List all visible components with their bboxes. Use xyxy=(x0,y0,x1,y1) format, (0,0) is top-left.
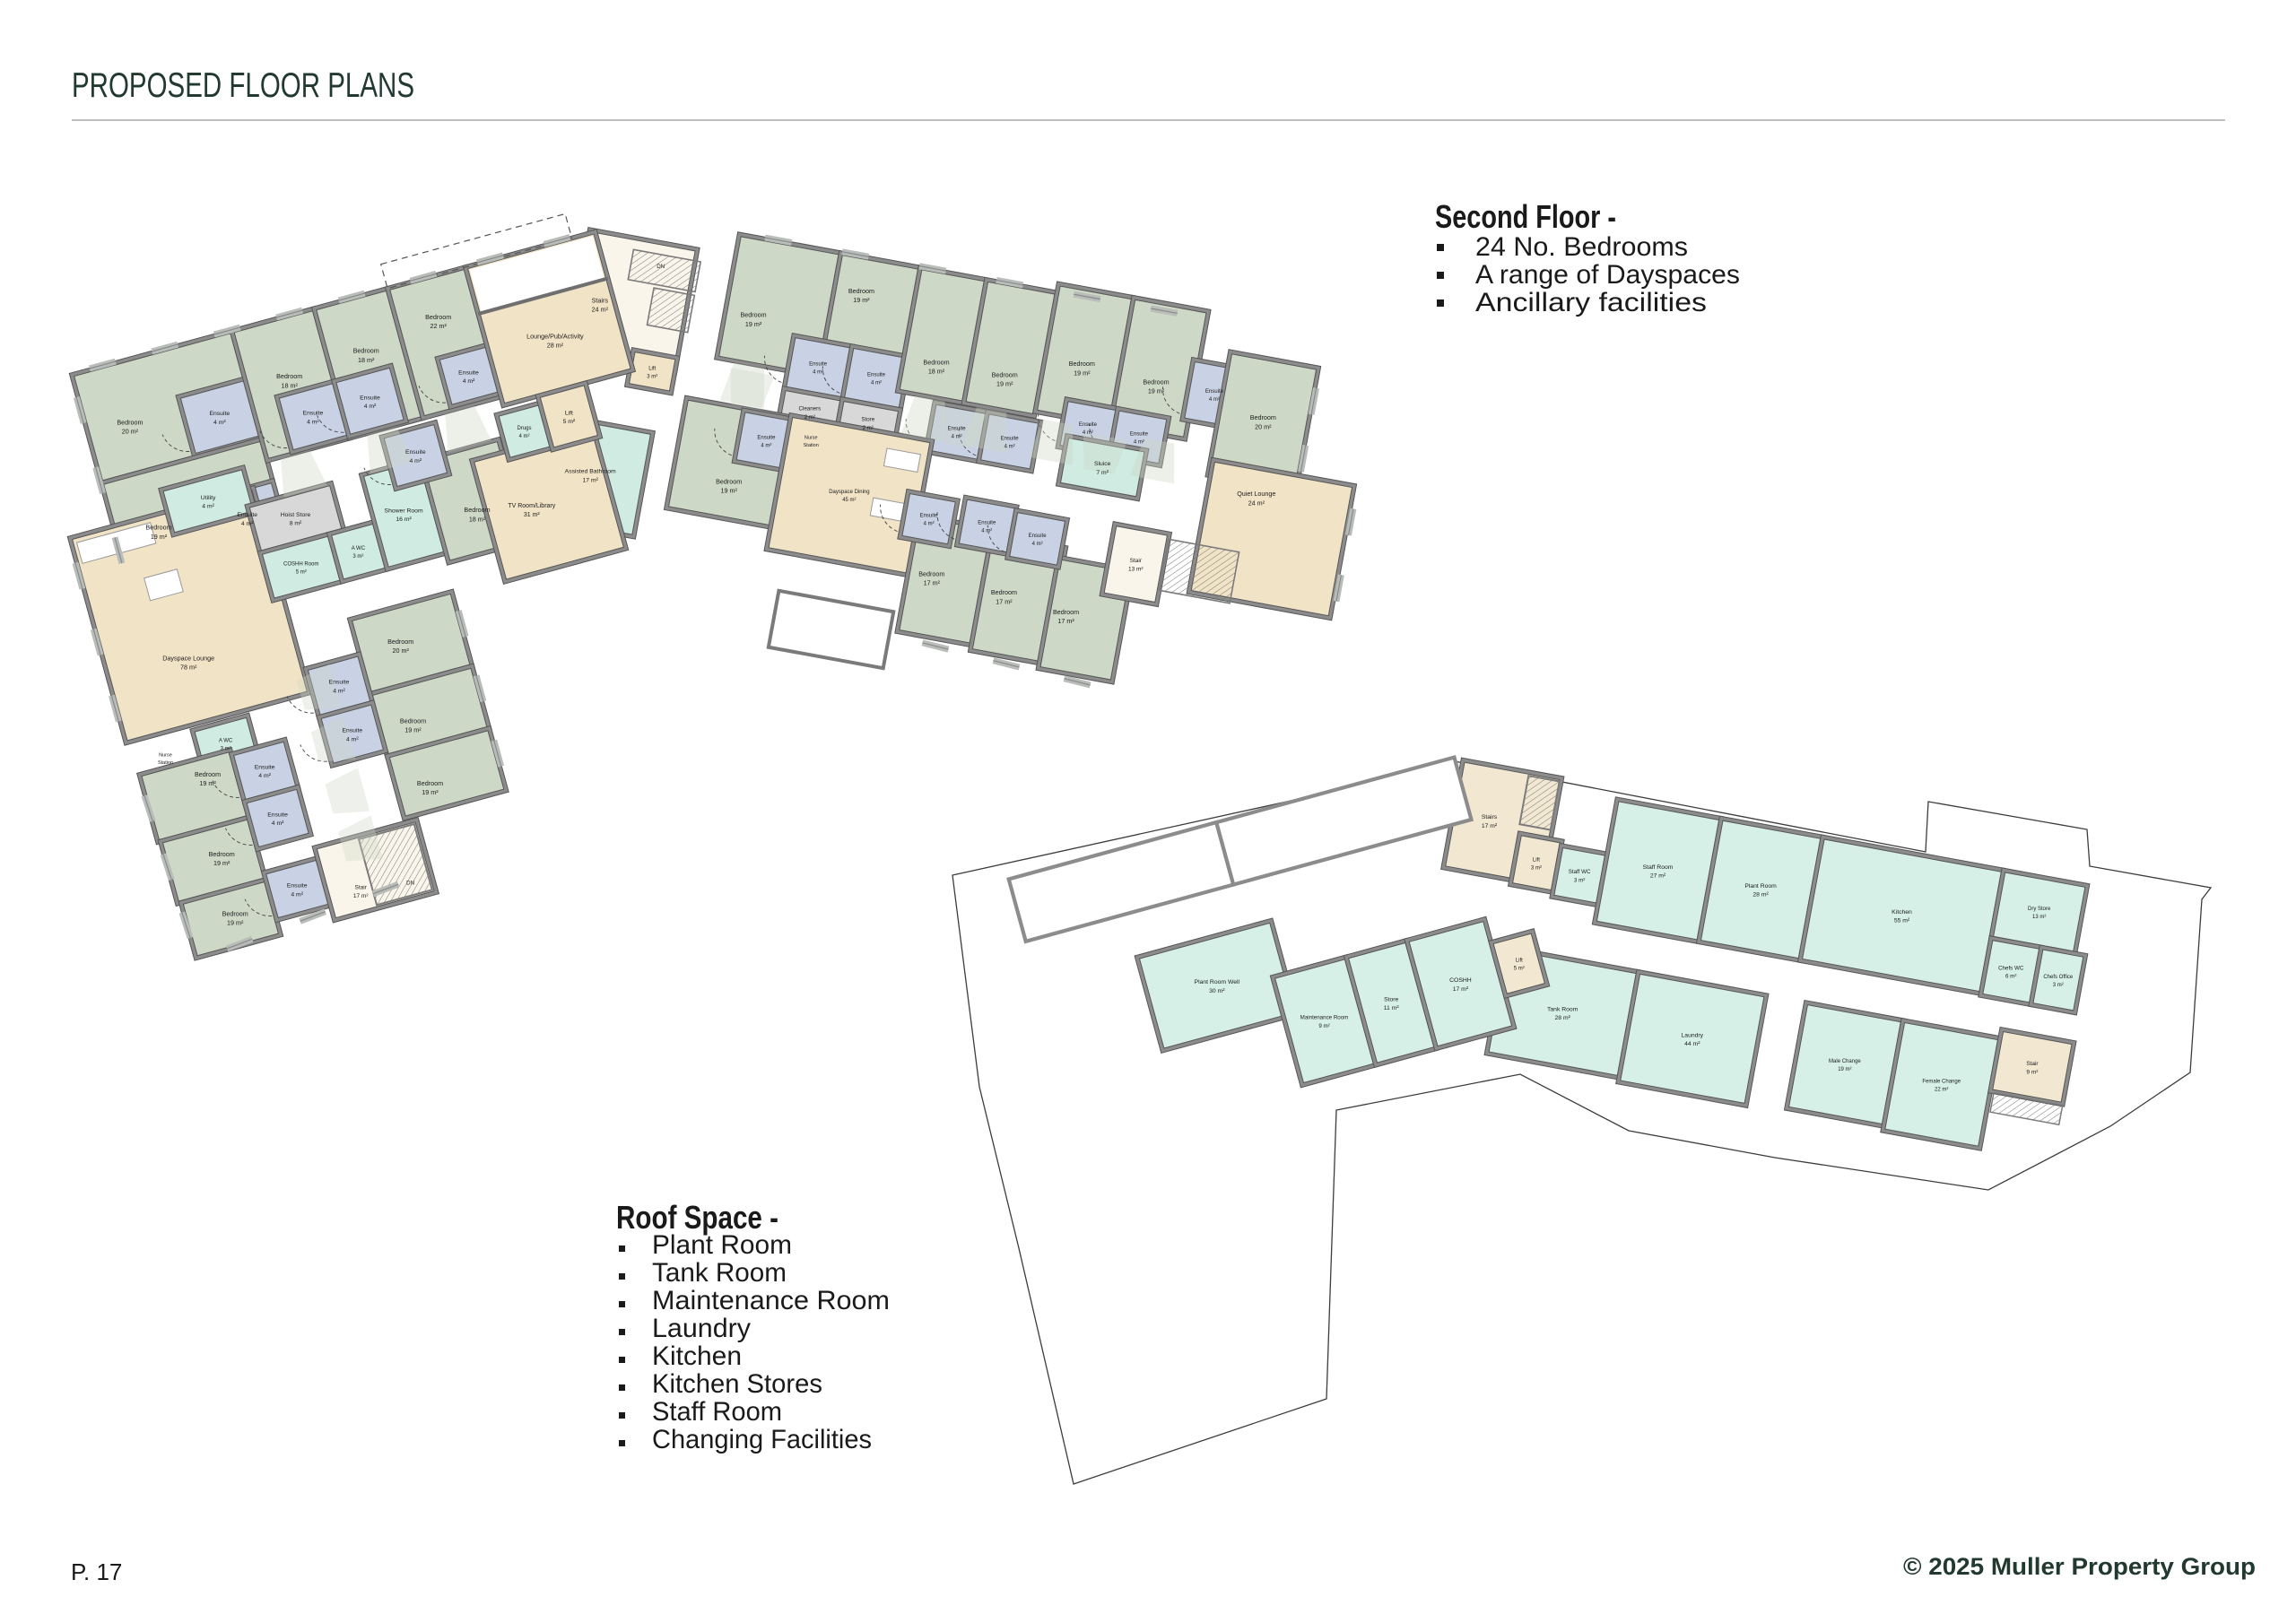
svg-text:19 m²: 19 m² xyxy=(853,296,870,304)
svg-text:Sluice: Sluice xyxy=(1094,461,1111,467)
svg-text:4 m²: 4 m² xyxy=(272,820,284,827)
svg-text:Male Change: Male Change xyxy=(1829,1059,1861,1064)
svg-text:3 m²: 3 m² xyxy=(352,554,363,560)
svg-text:30 m²: 30 m² xyxy=(1209,988,1225,994)
svg-text:6 m²: 6 m² xyxy=(2005,974,2016,980)
svg-text:19 m²: 19 m² xyxy=(745,320,762,328)
svg-text:4 m²: 4 m² xyxy=(1083,430,1093,436)
svg-text:13 m²: 13 m² xyxy=(2032,915,2046,920)
svg-text:Utility: Utility xyxy=(201,495,216,501)
svg-text:4 m²: 4 m² xyxy=(871,381,882,386)
svg-text:4 m²: 4 m² xyxy=(1032,542,1043,547)
svg-text:8 m²: 8 m² xyxy=(290,521,302,527)
svg-text:Tank Room: Tank Room xyxy=(652,1258,787,1288)
svg-text:Ensuite: Ensuite xyxy=(303,411,324,417)
svg-text:Nurse: Nurse xyxy=(804,436,818,441)
svg-text:Ensuite: Ensuite xyxy=(237,512,257,518)
svg-text:28 m²: 28 m² xyxy=(547,342,564,350)
svg-text:DN: DN xyxy=(406,880,414,886)
svg-text:Bedroom: Bedroom xyxy=(1143,378,1169,386)
svg-text:17 m²: 17 m² xyxy=(1482,823,1498,829)
svg-text:4 m²: 4 m² xyxy=(1209,397,1220,403)
svg-text:19 m²: 19 m² xyxy=(227,919,244,927)
svg-text:22 m²: 22 m² xyxy=(430,322,448,330)
svg-text:5 m²: 5 m² xyxy=(1514,967,1525,972)
svg-text:Bedroom: Bedroom xyxy=(848,287,874,295)
svg-text:Ensuite: Ensuite xyxy=(1029,534,1048,539)
svg-text:4 m²: 4 m² xyxy=(346,737,359,743)
svg-text:Staff Room: Staff Room xyxy=(1643,864,1674,871)
svg-text:Ensuite: Ensuite xyxy=(255,764,275,770)
svg-text:Ensuite: Ensuite xyxy=(267,811,288,818)
svg-text:Lounge/Pub/Activity: Lounge/Pub/Activity xyxy=(526,332,584,340)
svg-text:3 m²: 3 m² xyxy=(647,374,657,379)
svg-text:Ensuite: Ensuite xyxy=(978,521,996,526)
svg-text:45 m²: 45 m² xyxy=(842,498,856,503)
svg-text:13 m²: 13 m² xyxy=(1128,567,1144,573)
svg-text:Kitchen: Kitchen xyxy=(1892,909,1912,916)
svg-text:Ensuite: Ensuite xyxy=(809,362,828,368)
svg-text:Dayspace Lounge: Dayspace Lounge xyxy=(162,655,214,663)
svg-text:A range of Dayspaces: A range of Dayspaces xyxy=(1475,260,1740,290)
svg-text:9 m²: 9 m² xyxy=(2026,1069,2039,1075)
svg-text:Bedroom: Bedroom xyxy=(195,770,221,778)
svg-text:COSHH: COSHH xyxy=(1449,977,1472,984)
svg-text:Bedroom: Bedroom xyxy=(117,418,143,426)
svg-text:19 m²: 19 m² xyxy=(151,533,168,541)
svg-text:Shower Room: Shower Room xyxy=(385,508,423,514)
svg-text:19 m²: 19 m² xyxy=(721,487,738,495)
svg-text:Bedroom: Bedroom xyxy=(1250,413,1276,421)
svg-text:Stair: Stair xyxy=(2026,1061,2039,1067)
svg-text:Bedroom: Bedroom xyxy=(425,313,451,321)
svg-text:19 m²: 19 m² xyxy=(213,859,230,867)
svg-text:Ensuite: Ensuite xyxy=(405,449,426,456)
svg-text:4 m²: 4 m² xyxy=(364,404,377,410)
svg-text:9 m²: 9 m² xyxy=(1318,1023,1329,1029)
svg-text:DN: DN xyxy=(657,264,665,270)
svg-text:19 m²: 19 m² xyxy=(1074,369,1091,377)
svg-text:3 m²: 3 m² xyxy=(221,746,231,751)
svg-text:TV Room/Library: TV Room/Library xyxy=(508,503,555,509)
svg-text:Staff Room: Staff Room xyxy=(652,1397,782,1427)
svg-text:4 m²: 4 m² xyxy=(813,370,823,376)
svg-text:Plant Room Well: Plant Room Well xyxy=(1195,979,1240,985)
svg-text:17 m²: 17 m² xyxy=(996,597,1013,605)
svg-text:31 m²: 31 m² xyxy=(524,512,541,518)
svg-text:Ensuite: Ensuite xyxy=(458,369,479,376)
svg-text:Plant Room: Plant Room xyxy=(1744,883,1777,890)
svg-text:Store: Store xyxy=(1384,996,1398,1002)
svg-text:Drugs: Drugs xyxy=(517,426,531,431)
svg-text:18 m²: 18 m² xyxy=(928,368,945,376)
svg-text:4 m²: 4 m² xyxy=(761,444,771,449)
svg-text:Lift: Lift xyxy=(565,410,573,416)
svg-text:Store: Store xyxy=(861,417,874,423)
svg-text:Bedroom: Bedroom xyxy=(464,506,490,514)
svg-text:Ensuite: Ensuite xyxy=(209,411,230,417)
svg-text:17 m²: 17 m² xyxy=(353,893,369,899)
svg-text:Cleaners: Cleaners xyxy=(799,406,822,412)
svg-text:Changing Facilities: Changing Facilities xyxy=(652,1425,872,1454)
svg-text:Kitchen: Kitchen xyxy=(652,1341,742,1371)
svg-text:20 m²: 20 m² xyxy=(122,428,139,436)
svg-text:28 m²: 28 m² xyxy=(1752,892,1769,898)
svg-text:4 m²: 4 m² xyxy=(409,458,422,464)
svg-text:18 m²: 18 m² xyxy=(282,381,299,389)
svg-text:Laundry: Laundry xyxy=(1682,1032,1704,1038)
svg-text:Ensuite: Ensuite xyxy=(1001,437,1020,442)
svg-text:Bedroom: Bedroom xyxy=(276,372,302,380)
svg-text:3 m²: 3 m² xyxy=(2053,983,2064,988)
svg-text:Nurse: Nurse xyxy=(159,753,172,759)
svg-text:Chefs WC: Chefs WC xyxy=(1998,965,2024,971)
svg-text:22 m²: 22 m² xyxy=(1935,1087,1948,1092)
svg-text:© 2025 Muller Property Group: © 2025 Muller Property Group xyxy=(1903,1553,2256,1580)
svg-text:A WC: A WC xyxy=(352,546,366,551)
svg-text:4 m²: 4 m² xyxy=(519,434,530,439)
svg-text:4 m²: 4 m² xyxy=(213,420,226,426)
svg-text:78 m²: 78 m² xyxy=(180,664,197,672)
svg-text:Bedroom: Bedroom xyxy=(918,569,944,577)
svg-text:4 m²: 4 m² xyxy=(952,435,962,440)
svg-text:Dry Store: Dry Store xyxy=(2028,907,2051,912)
svg-text:Kitchen Stores: Kitchen Stores xyxy=(652,1369,822,1399)
svg-text:4 m²: 4 m² xyxy=(924,522,935,527)
svg-text:Maintenance Room: Maintenance Room xyxy=(652,1286,890,1315)
svg-text:Bedroom: Bedroom xyxy=(145,524,171,532)
svg-text:18 m²: 18 m² xyxy=(358,356,375,364)
svg-text:19 m²: 19 m² xyxy=(404,726,422,734)
svg-text:Laundry: Laundry xyxy=(652,1314,751,1343)
svg-text:Ensuite: Ensuite xyxy=(948,427,967,432)
svg-text:4 m²: 4 m² xyxy=(258,773,271,779)
svg-text:Tank Room: Tank Room xyxy=(1547,1006,1578,1012)
svg-text:Station: Station xyxy=(804,443,819,448)
svg-text:4 m²: 4 m² xyxy=(241,521,254,527)
svg-text:20 m²: 20 m² xyxy=(393,647,410,655)
svg-text:2 m²: 2 m² xyxy=(863,425,874,431)
svg-text:Ensuite: Ensuite xyxy=(867,373,886,378)
svg-text:Plant Room: Plant Room xyxy=(652,1230,792,1260)
svg-text:5 m²: 5 m² xyxy=(563,419,576,425)
svg-text:16 m²: 16 m² xyxy=(396,516,412,523)
svg-text:Female Change: Female Change xyxy=(1922,1079,1961,1084)
svg-text:Ensuite: Ensuite xyxy=(1205,389,1224,395)
svg-text:Bedroom: Bedroom xyxy=(741,311,767,319)
svg-text:4 m²: 4 m² xyxy=(981,529,992,534)
svg-text:Second Floor -: Second Floor - xyxy=(1435,198,1616,235)
svg-text:Ensuite: Ensuite xyxy=(360,395,380,401)
svg-text:Ancillary facilities: Ancillary facilities xyxy=(1475,288,1707,317)
svg-text:Bedroom: Bedroom xyxy=(992,370,1018,378)
svg-text:Bedroom: Bedroom xyxy=(1069,360,1095,368)
svg-text:Ensuite: Ensuite xyxy=(1079,422,1098,428)
svg-text:4 m²: 4 m² xyxy=(333,688,345,694)
svg-text:17 m²: 17 m² xyxy=(1453,986,1469,993)
svg-text:COSHH Room: COSHH Room xyxy=(283,562,318,568)
svg-text:4 m²: 4 m² xyxy=(291,891,303,898)
svg-text:Stairs: Stairs xyxy=(592,297,609,305)
svg-text:Bedroom: Bedroom xyxy=(353,347,379,355)
svg-text:Dayspace Dining: Dayspace Dining xyxy=(829,490,869,495)
svg-text:Station: Station xyxy=(158,760,173,766)
svg-text:Stair: Stair xyxy=(1130,558,1143,564)
svg-text:28 m²: 28 m² xyxy=(1555,1015,1571,1021)
svg-text:18 m²: 18 m² xyxy=(469,515,486,523)
svg-text:Bedroom: Bedroom xyxy=(400,716,426,725)
svg-text:Ensuite: Ensuite xyxy=(1130,432,1149,438)
svg-text:Lift: Lift xyxy=(648,366,656,371)
svg-text:Bedroom: Bedroom xyxy=(716,477,742,485)
svg-text:20 m²: 20 m² xyxy=(1255,422,1272,430)
svg-text:19 m²: 19 m² xyxy=(199,779,216,787)
svg-text:Bedroom: Bedroom xyxy=(222,909,248,917)
svg-text:A WC: A WC xyxy=(219,738,233,743)
svg-text:Ensuite: Ensuite xyxy=(329,680,350,686)
svg-text:27 m²: 27 m² xyxy=(1650,873,1666,880)
svg-text:Hoist Store: Hoist Store xyxy=(281,512,311,518)
svg-text:24 m²: 24 m² xyxy=(592,306,609,314)
svg-text:Staff WC: Staff WC xyxy=(1569,869,1591,875)
svg-text:4 m²: 4 m² xyxy=(1004,445,1015,450)
svg-text:7 m²: 7 m² xyxy=(1096,470,1109,476)
svg-text:Assisted Bathroom: Assisted Bathroom xyxy=(565,469,616,475)
svg-text:Bedroom: Bedroom xyxy=(991,588,1017,596)
svg-text:3 m²: 3 m² xyxy=(1531,865,1542,871)
svg-text:2 m²: 2 m² xyxy=(804,414,815,421)
svg-text:Bedroom: Bedroom xyxy=(387,638,413,646)
svg-text:24 No. Bedrooms: 24 No. Bedrooms xyxy=(1475,232,1688,262)
svg-text:Stairs: Stairs xyxy=(1482,814,1498,820)
svg-text:17 m²: 17 m² xyxy=(924,579,941,587)
svg-text:Chefs Office: Chefs Office xyxy=(2043,975,2074,980)
svg-text:17 m²: 17 m² xyxy=(1057,617,1074,625)
svg-text:55 m²: 55 m² xyxy=(1894,918,1910,924)
svg-text:4 m²: 4 m² xyxy=(307,420,319,426)
svg-text:P. 17: P. 17 xyxy=(71,1558,122,1585)
svg-text:19 m²: 19 m² xyxy=(422,788,439,796)
svg-text:Ensuite: Ensuite xyxy=(757,436,776,441)
svg-text:Bedroom: Bedroom xyxy=(417,779,443,787)
svg-text:Maintenance Room: Maintenance Room xyxy=(1300,1015,1349,1021)
svg-text:Lift: Lift xyxy=(1516,959,1523,964)
svg-text:19 m²: 19 m² xyxy=(1148,387,1165,395)
svg-text:44 m²: 44 m² xyxy=(1684,1041,1700,1047)
svg-text:Bedroom: Bedroom xyxy=(923,358,949,366)
svg-text:5 m²: 5 m² xyxy=(296,570,307,576)
svg-text:4 m²: 4 m² xyxy=(202,504,214,510)
svg-text:4 m²: 4 m² xyxy=(1134,440,1144,446)
svg-text:24 m²: 24 m² xyxy=(1248,499,1265,507)
svg-text:4 m²: 4 m² xyxy=(463,378,475,385)
svg-text:Ensuite: Ensuite xyxy=(342,728,362,734)
svg-text:Quiet Lounge: Quiet Lounge xyxy=(1237,490,1275,498)
svg-text:17 m²: 17 m² xyxy=(583,478,599,484)
svg-text:Stair: Stair xyxy=(355,884,368,890)
svg-text:19 m²: 19 m² xyxy=(1838,1067,1851,1072)
svg-text:Bedroom: Bedroom xyxy=(1053,608,1079,616)
svg-text:Lift: Lift xyxy=(1533,857,1540,863)
svg-text:PROPOSED FLOOR PLANS: PROPOSED FLOOR PLANS xyxy=(72,66,414,105)
svg-text:3 m²: 3 m² xyxy=(1574,877,1585,883)
svg-text:Ensuite: Ensuite xyxy=(920,514,939,519)
svg-text:Bedroom: Bedroom xyxy=(209,850,235,858)
svg-text:Ensuite: Ensuite xyxy=(287,883,308,890)
svg-text:11 m²: 11 m² xyxy=(1384,1005,1400,1011)
svg-text:19 m²: 19 m² xyxy=(996,380,1013,388)
